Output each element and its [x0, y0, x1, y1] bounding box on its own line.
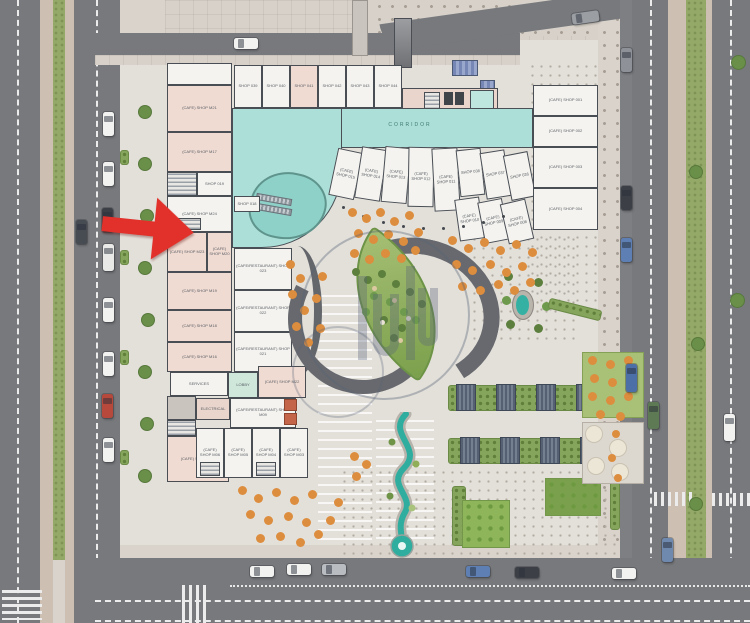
kitchen-equipment [284, 413, 297, 425]
crosswalk-right-road-inner [654, 492, 694, 506]
dining-tables-small [350, 452, 359, 461]
service-lane-band [352, 0, 368, 56]
rooftop-panels [452, 60, 478, 76]
site-plan-canvas: SHOP 039 SHOP 040 SHOP 041 SHOP 042 SHOP… [0, 0, 750, 623]
shop-unit: (CAFE) SHOP 004 [533, 188, 598, 230]
shop-unit: (CAFE) SHOP M21 [167, 85, 232, 132]
kitchen-equipment [284, 399, 297, 411]
pergola [496, 384, 516, 411]
bottom-road-edge-line [230, 585, 750, 587]
restaurant-unit: (CAFE/RESTAURANT) SHOP 022 [234, 290, 292, 332]
right-road-lane-line [650, 0, 652, 623]
pergola [456, 384, 476, 411]
shop-unit: (CAFE) SHOP M22 [258, 366, 306, 398]
car [662, 538, 673, 562]
street-trees-right-edge [732, 56, 745, 69]
shop-unit: SHOP 040 [262, 65, 290, 108]
car [250, 566, 274, 577]
car [724, 414, 735, 441]
car [102, 394, 113, 418]
restaurant-unit: (CAFE/RESTAURANT) SHOP 023 [234, 248, 292, 290]
shop-unit: SHOP 043 [346, 65, 374, 108]
lobby: LOBBY [228, 372, 258, 398]
left-service-lane-line [96, 0, 98, 560]
staircase [256, 462, 276, 476]
pergola [540, 437, 560, 464]
dining-cluster-north [348, 208, 357, 217]
car [322, 564, 346, 575]
shop-unit: (CAFE) SHOP M05 [224, 428, 252, 478]
dining-cluster-east [448, 236, 457, 245]
shop-unit-blank [167, 63, 232, 85]
location-marker-arrow [99, 191, 199, 264]
street-trees-left [139, 106, 151, 118]
dining-cluster-west [286, 260, 295, 269]
car [103, 112, 114, 136]
crosswalk-right-road-outer [712, 493, 750, 506]
car [103, 298, 114, 322]
shop-unit: (CAFE) SHOP 003 [533, 147, 598, 188]
parking-ramp [394, 18, 412, 68]
right-paver-strip [668, 0, 686, 623]
right-median-green [686, 0, 706, 623]
car [103, 352, 114, 376]
services-room: SERVICES [170, 372, 228, 396]
pergola [536, 384, 556, 411]
utility-room [167, 396, 196, 420]
right-outer-lane-line [730, 0, 732, 623]
terrace-umbrellas-accent [612, 430, 620, 438]
service-room [470, 90, 494, 110]
car [234, 38, 258, 49]
left-paver-strip-2 [65, 0, 74, 623]
car [621, 238, 632, 262]
shop-unit: (CAFE) SHOP 012 [407, 147, 434, 207]
garden-accent-shrubs [372, 286, 377, 291]
crosswalk-bottom-road [182, 585, 208, 623]
fountain-water [516, 295, 529, 315]
shop-unit: SHOP 039 [234, 65, 262, 108]
truck [648, 402, 659, 429]
car [621, 48, 632, 72]
staircase [167, 420, 196, 436]
car [76, 220, 87, 244]
arrow-shaft [101, 216, 156, 237]
shop-unit: SHOP 019 [197, 172, 232, 196]
shop-unit: SHOP 041 [290, 65, 318, 108]
car [287, 564, 311, 575]
garden-trees [352, 268, 360, 276]
shop-unit: (CAFE) SHOP M18 [167, 310, 232, 342]
left-median-green [53, 0, 65, 560]
arrow-head [151, 198, 197, 264]
colonnade-columns [342, 206, 345, 209]
planter [120, 150, 129, 165]
right-parking-lane [620, 0, 632, 623]
shop-unit: (CAFE) SHOP M19 [167, 272, 232, 310]
shop-unit: (CAFE) SHOP M03 [280, 428, 308, 478]
shop-unit: (CAFE) SHOP 001 [533, 85, 598, 116]
lawn-square [462, 500, 510, 548]
car [621, 186, 632, 210]
car [103, 438, 114, 462]
elevator [444, 92, 453, 105]
shop-unit: (CAFE) SHOP M16 [167, 342, 232, 372]
car [612, 568, 636, 579]
dining-cluster-south [238, 486, 247, 495]
left-paver-strip [40, 0, 53, 623]
staircase [200, 462, 220, 476]
car [515, 567, 539, 578]
pergola [500, 437, 520, 464]
street-trees-median [690, 166, 702, 178]
terrace-umbrellas-orange [588, 356, 597, 365]
left-road-lane-line [17, 0, 19, 623]
shop-unit: (CAFE) SHOP M17 [167, 132, 232, 172]
electrical-room: ELECTRICAL [196, 398, 230, 420]
pergola [460, 437, 480, 464]
shop-unit: (CAFE) SHOP M20 [207, 232, 232, 272]
shop-unit: SHOP 044 [374, 65, 402, 108]
planter [120, 350, 129, 365]
left-road-main [0, 0, 40, 623]
kiosk-unit: SHOP 018 [234, 196, 260, 212]
car [626, 364, 637, 392]
terrace-umbrellas-white [586, 426, 602, 442]
staircase [167, 172, 197, 196]
elevator [455, 92, 464, 105]
water-stream [372, 412, 436, 562]
car [103, 162, 114, 186]
crosswalk-left-road [2, 590, 42, 620]
shop-unit: (CAFE) SHOP 002 [533, 116, 598, 147]
shop-unit: SHOP 042 [318, 65, 346, 108]
car [466, 566, 490, 577]
planter [120, 450, 129, 465]
fountain-palms [504, 272, 513, 281]
corridor-label: CORRIDOR [375, 120, 445, 132]
